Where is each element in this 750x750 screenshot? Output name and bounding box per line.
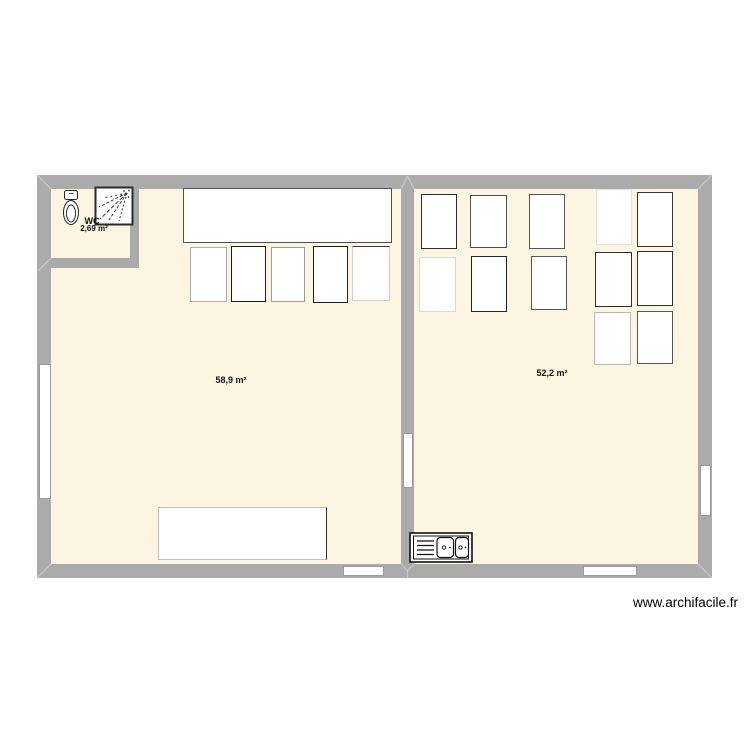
window-right-wall[interactable] [700,465,711,516]
wall-top[interactable] [37,175,712,189]
table-right-b5[interactable] [594,312,631,365]
table-right-a4[interactable] [419,257,456,312]
table-right-b2[interactable] [637,192,673,247]
left-room-area-label: 58,9 m² [156,375,306,385]
window-bottom-left[interactable] [343,566,384,576]
window-bottom-right[interactable] [583,566,637,576]
table-right-b3[interactable] [595,252,632,307]
door-divider[interactable] [403,433,413,488]
right-room-area-label: 52,2 m² [477,368,627,378]
table-right-b1[interactable] [596,189,632,245]
wall-divider[interactable] [401,189,414,564]
table-left-row-1[interactable] [190,247,227,302]
table-left-bottom[interactable] [158,507,327,560]
floor-plan-canvas: WC 2,69 m² 58,9 m² 52,2 m² [0,0,750,750]
table-right-a1[interactable] [421,194,457,249]
table-left-row-3[interactable] [271,247,305,302]
table-right-a3[interactable] [529,194,565,249]
table-right-b4[interactable] [637,251,673,306]
wall-wc-bottom[interactable] [37,258,139,268]
table-left-row-4[interactable] [313,246,348,303]
table-right-a6[interactable] [531,256,567,310]
table-left-row-5[interactable] [352,246,390,301]
window-left-wall[interactable] [39,364,51,499]
table-left-top[interactable] [183,188,392,243]
archifacile-watermark: www.archifacile.fr [633,595,738,610]
table-left-row-2[interactable] [231,246,266,302]
table-right-a5[interactable] [471,256,507,312]
wall-right[interactable] [698,175,712,578]
table-right-b6[interactable] [637,311,673,364]
table-right-a2[interactable] [470,195,507,248]
wc-area-label: 2,69 m² [54,224,134,233]
sink-icon[interactable] [409,532,473,563]
